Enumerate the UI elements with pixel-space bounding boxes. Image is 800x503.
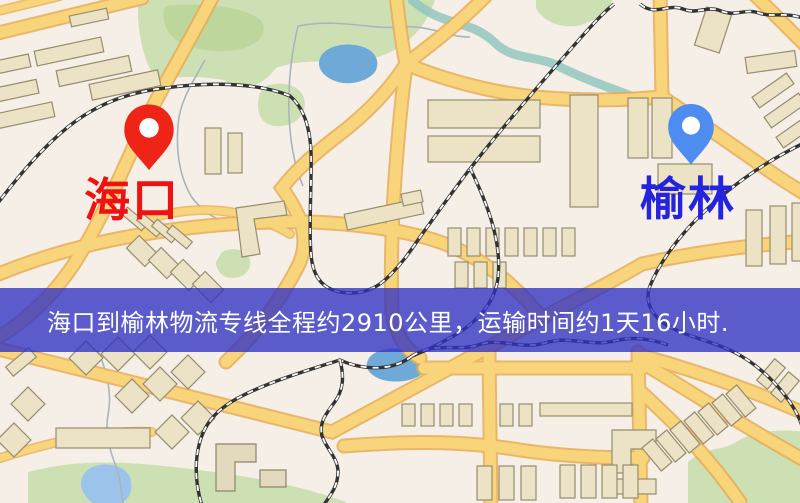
map-image: 海口 榆林 海口到榆林物流专线全程约2910公里，运输时间约1天16小时. <box>0 0 800 503</box>
destination-label: 榆林 <box>640 176 736 222</box>
banner-text: 海口到榆林物流专线全程约2910公里，运输时间约1天16小时. <box>47 303 729 338</box>
origin-label: 海口 <box>84 177 180 223</box>
route-banner: 海口到榆林物流专线全程约2910公里，运输时间约1天16小时. <box>0 288 800 352</box>
map-background <box>0 0 800 503</box>
destination-pin-icon <box>667 100 715 168</box>
origin-pin-icon <box>123 101 175 173</box>
